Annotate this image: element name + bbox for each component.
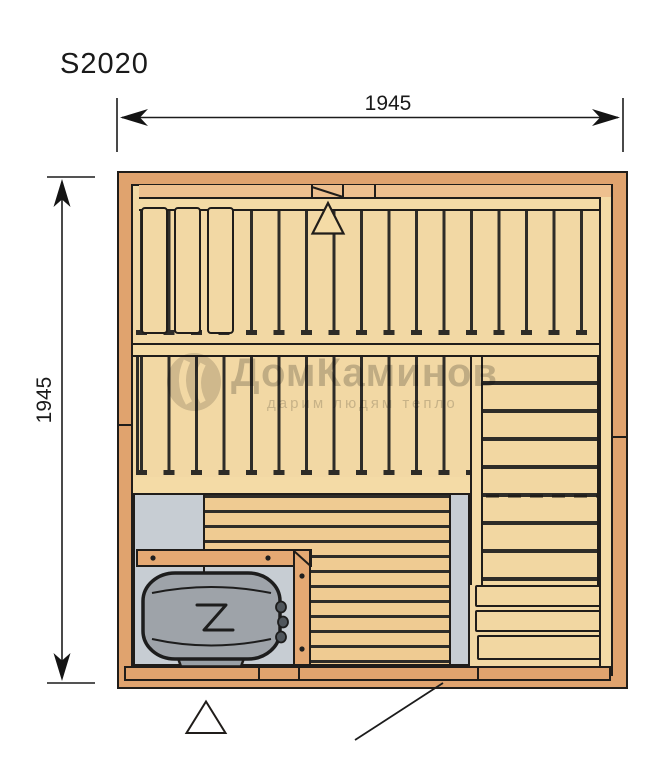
heater-guard-rail-horizontal	[136, 549, 312, 567]
step-board	[477, 635, 601, 660]
arrowhead-down-icon	[54, 653, 71, 681]
backrest-rail	[133, 343, 611, 357]
backrest-board	[141, 207, 168, 334]
sill-joint	[298, 667, 300, 680]
bottom-wall-sill	[124, 666, 611, 681]
heater-guard-rail-vertical	[293, 549, 311, 666]
vent-triangle-icon	[187, 702, 226, 734]
arrowhead-left-icon	[120, 109, 148, 126]
lower-paneling-ends	[136, 470, 470, 475]
lower-wall-paneling	[136, 357, 470, 472]
arrowhead-up-icon	[54, 179, 71, 207]
door-leader-line	[355, 683, 443, 740]
sill-joint	[477, 667, 479, 680]
bench-boards	[483, 357, 599, 585]
dimension-height-label: 1945	[33, 360, 57, 440]
arrowhead-right-icon	[592, 109, 620, 126]
sauna-plan-canvas: S2020 1945 1945	[0, 0, 655, 766]
bench-front-edge	[470, 357, 483, 585]
right-wall-lining	[599, 197, 611, 676]
upper-wall-paneling	[136, 211, 599, 330]
floor-front-rail	[133, 477, 470, 493]
step-board	[475, 585, 601, 607]
step-board	[475, 610, 601, 632]
dimension-width-label: 1945	[338, 92, 438, 116]
upper-paneling-ends	[136, 330, 599, 335]
backrest-board	[207, 207, 234, 334]
backrest-board	[174, 207, 201, 334]
sill-joint	[258, 667, 260, 680]
model-title: S2020	[60, 48, 149, 81]
top-wall-vent-band	[139, 185, 611, 199]
